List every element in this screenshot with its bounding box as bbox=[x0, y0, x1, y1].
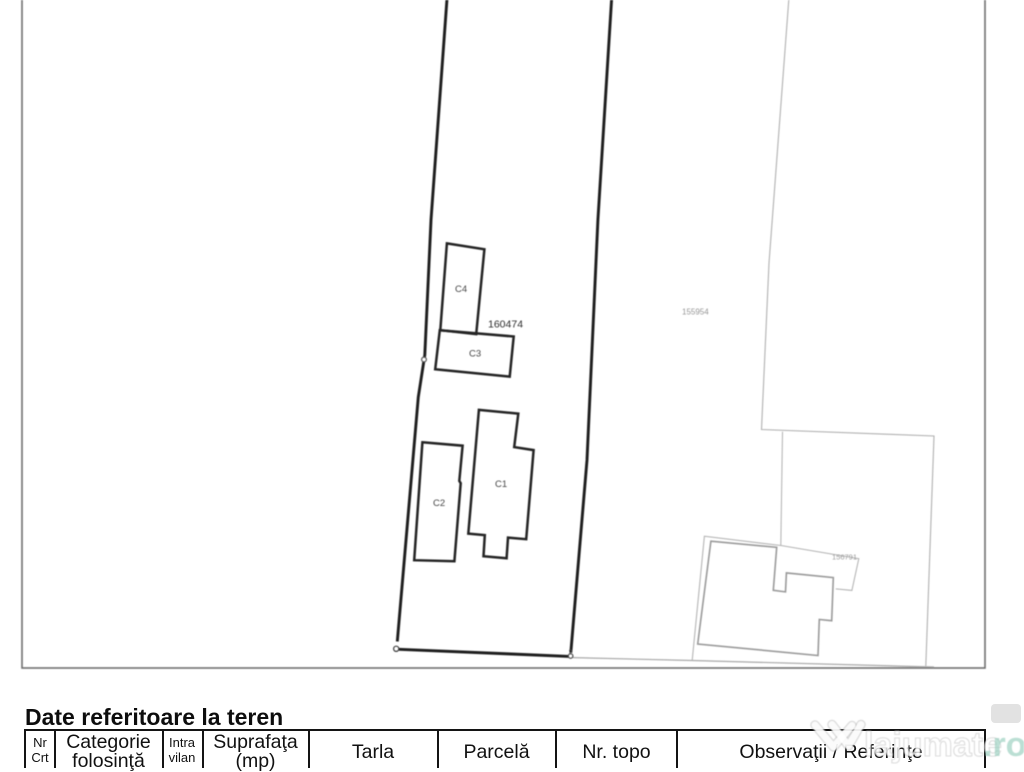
svg-text:C3: C3 bbox=[469, 349, 481, 360]
svg-text:lajumate: lajumate bbox=[864, 726, 1002, 764]
svg-text:.ro: .ro bbox=[983, 726, 1024, 764]
svg-text:C4: C4 bbox=[455, 284, 467, 295]
svg-text:C1: C1 bbox=[495, 479, 507, 490]
svg-text:160474: 160474 bbox=[488, 318, 523, 330]
svg-text:2: 2 bbox=[569, 650, 573, 657]
svg-text:155954: 155954 bbox=[682, 308, 709, 317]
svg-text:156791: 156791 bbox=[832, 553, 857, 562]
svg-text:C2: C2 bbox=[433, 498, 445, 509]
